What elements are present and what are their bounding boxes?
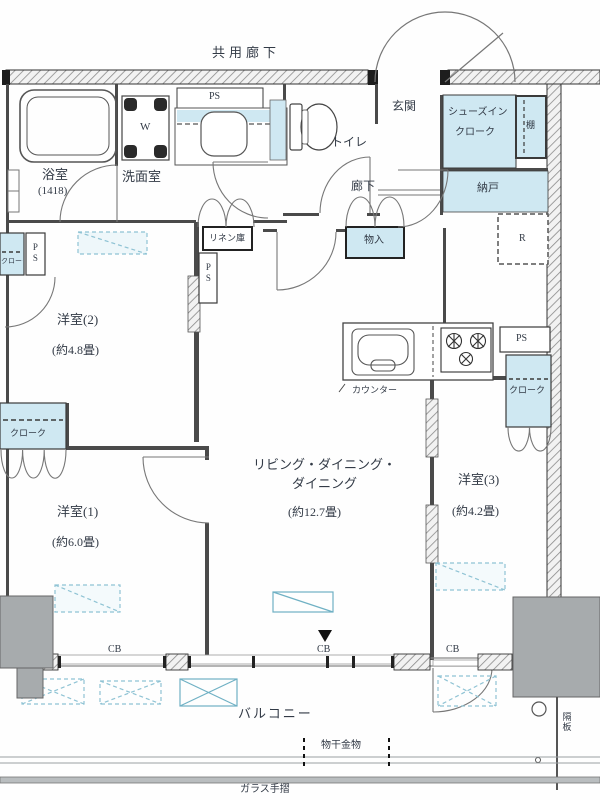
label-common-corridor: 共用廊下 xyxy=(212,46,280,60)
label-bathroom: 浴室 xyxy=(42,168,68,182)
floor-plan-linework xyxy=(0,0,600,800)
balcony-wall-windows xyxy=(6,630,545,670)
kitchen-counter xyxy=(339,323,493,392)
label-bathroom-size: (1418) xyxy=(38,186,67,198)
label-ldk-size: (約12.7畳) xyxy=(288,506,341,519)
label-hallway: 廊下 xyxy=(351,180,375,193)
label-ps-room2-right: PS xyxy=(203,262,212,284)
label-cb-left: CB xyxy=(108,645,121,656)
label-glass-rail: ガラス手摺 xyxy=(240,785,290,796)
entrance-step xyxy=(378,190,440,195)
label-laundry-hardware: 物干金物 xyxy=(321,741,361,752)
label-cb-center: CB xyxy=(317,645,330,656)
label-ps-room2-left: PS xyxy=(30,242,39,264)
balcony-structures xyxy=(0,596,600,790)
label-shoes-closet-1: シューズイン xyxy=(448,108,508,119)
bathroom-counter xyxy=(8,170,19,212)
label-storage: 物入 xyxy=(364,236,384,247)
label-room1: 洋室(1) xyxy=(57,505,98,519)
label-ps-washroom: PS xyxy=(209,92,220,103)
bathtub xyxy=(20,90,116,162)
label-ps-room3: PS xyxy=(516,334,527,345)
label-ldk-line2: ダイニング xyxy=(292,477,357,491)
label-toilet: トイレ xyxy=(331,136,367,149)
label-washroom: 洗面室 xyxy=(122,170,161,184)
label-cb-right: CB xyxy=(446,645,459,656)
label-entrance: 玄関 xyxy=(392,100,416,113)
label-balcony: バルコニー xyxy=(238,707,313,721)
label-room3-size: (約4.2畳) xyxy=(452,505,499,518)
toilet-fixture xyxy=(290,104,337,150)
label-cloak-room2: クローク xyxy=(1,258,23,265)
label-cloak-room1: クローク xyxy=(10,429,46,438)
label-cloak-room3: クローク xyxy=(509,386,545,395)
label-storeroom: 納戸 xyxy=(477,183,499,195)
vanity xyxy=(175,100,287,165)
label-fridge: R xyxy=(519,234,526,245)
label-linen: リネン庫 xyxy=(209,234,245,243)
label-room1-size: (約6.0畳) xyxy=(52,536,99,549)
label-room3: 洋室(3) xyxy=(458,473,499,487)
label-counter: カウンター xyxy=(352,386,397,395)
cb-marker-triangle xyxy=(318,630,332,642)
label-shoes-shelf: 棚 xyxy=(526,121,535,130)
floor-plan: 共用廊下 浴室 (1418) 洗面室 W PS トイレ 玄関 シューズイン クロ… xyxy=(0,0,600,800)
label-partition: 隔板 xyxy=(561,712,570,732)
sliding-doors xyxy=(188,276,438,563)
label-shoes-closet-2: クローク xyxy=(455,128,495,139)
label-ldk-line1: リビング・ダイニング・ xyxy=(253,458,396,472)
label-room2: 洋室(2) xyxy=(57,313,98,327)
label-washer: W xyxy=(140,122,150,134)
label-room2-size: (約4.8畳) xyxy=(52,344,99,357)
